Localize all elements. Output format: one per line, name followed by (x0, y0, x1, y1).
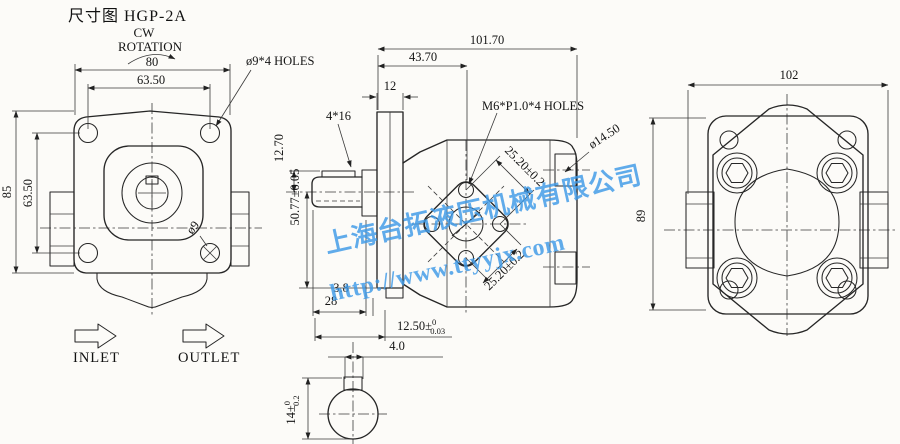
drawing-title: 尺寸图 HGP-2A (68, 7, 187, 25)
dim-80-text: 80 (146, 55, 159, 69)
dim-side-total-length: 101.70 (378, 33, 577, 138)
port-thread-text: ø14.50 (586, 121, 622, 151)
dim-14-text: 14±00.2 (282, 395, 301, 424)
dim-89-text: 89 (634, 210, 648, 223)
shaft-section-detail: 4.0 14±00.2 (282, 339, 443, 444)
outlet-port-tab (231, 192, 249, 266)
dim-12-70-text: 12.70 (272, 134, 286, 162)
dim-front-bolt-spacing-h: 63.50 (88, 73, 210, 129)
rotation-direction-label: CW (134, 25, 156, 40)
dim-port-depth: 12.50±00.03 (315, 310, 452, 341)
inlet-label: INLET (73, 350, 120, 366)
dim-85-text: 85 (0, 186, 14, 199)
dim-50-77-text: 50.77±0.05 (288, 169, 302, 226)
drawing-svg: 尺寸图 HGP-2A CW ROTATION (0, 0, 900, 444)
dim-flange-thickness: 12 (362, 79, 418, 110)
dim-side-body-length: 43.70 (378, 50, 467, 180)
label-mount-holes: ø9*4 HOLES (216, 54, 314, 126)
inlet-port-tab (50, 192, 74, 266)
dim-rear-height: 89 (634, 118, 706, 310)
dim-4-0-text: 4.0 (389, 339, 405, 353)
dim-12-50-text: 12.50±00.03 (397, 317, 445, 336)
dim-rear-width: 102 (688, 68, 888, 194)
key-size-text: 4*16 (326, 109, 351, 123)
flow-labels: INLET OUTLET (73, 324, 240, 366)
label-key-size: 4*16 (326, 109, 351, 167)
hex-bolt (817, 153, 857, 193)
hex-bolt (717, 153, 757, 193)
front-view (40, 103, 262, 316)
dim-101-70-text: 101.70 (470, 33, 504, 47)
title-block: 尺寸图 HGP-2A CW ROTATION (68, 7, 187, 64)
label-hole-dia: ø9 (183, 218, 207, 246)
rear-view (664, 94, 898, 336)
dim-43-70-text: 43.70 (409, 50, 437, 64)
watermark-company: 上海台拓液压机械有限公司 (322, 159, 645, 258)
shaft-key (322, 171, 355, 177)
label-port-thread: ø14.50 (565, 121, 622, 172)
dim-across-key: 14±00.2 (282, 378, 350, 439)
hole-dia-text: ø9 (183, 218, 202, 236)
dim-102-text: 102 (780, 68, 799, 82)
dimension-drawing-page: 尺寸图 HGP-2A CW ROTATION (0, 0, 900, 444)
outlet-label: OUTLET (178, 350, 240, 366)
hex-bolt (817, 258, 857, 298)
mount-holes-text: ø9*4 HOLES (246, 54, 314, 68)
thread-holes-text: M6*P1.0*4 HOLES (482, 99, 584, 113)
inlet-arrow-icon (75, 324, 116, 348)
hex-bolt (717, 258, 757, 298)
outlet-arrow-icon (183, 324, 224, 348)
rotation-word-label: ROTATION (118, 39, 183, 54)
dim-63-50-h-text: 63.50 (137, 73, 165, 87)
dim-63-50-v-text: 63.50 (21, 179, 35, 207)
dim-12-text: 12 (384, 79, 397, 93)
dim-key-width: 4.0 (328, 339, 443, 379)
